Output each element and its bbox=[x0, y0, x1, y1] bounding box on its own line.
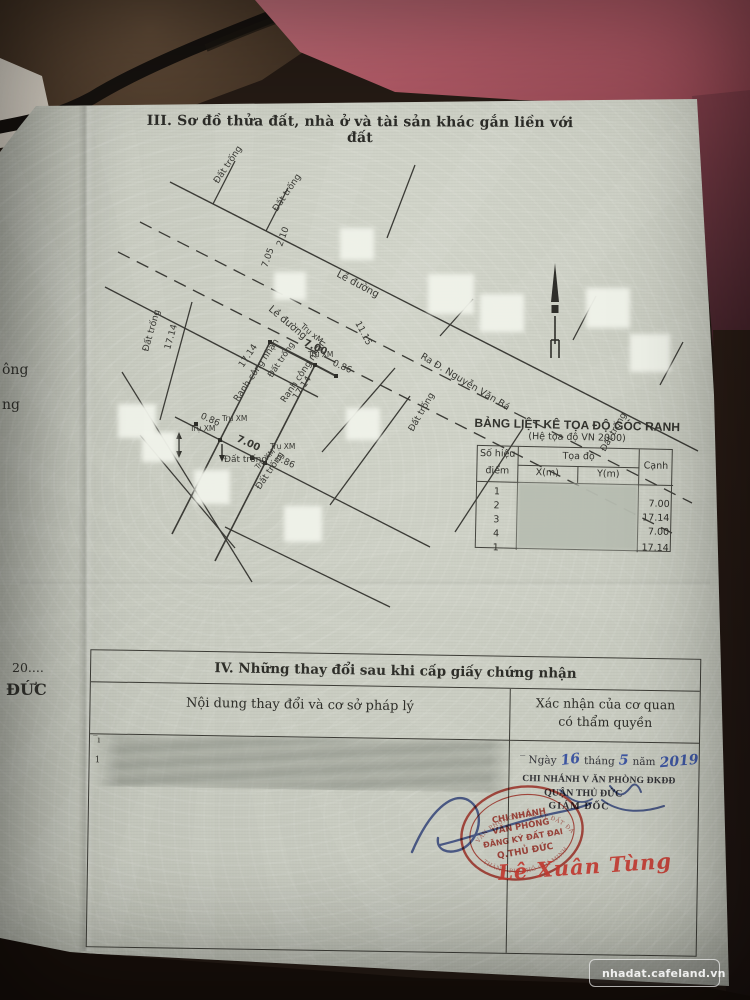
map-line bbox=[160, 302, 192, 420]
margin-mark: 1 bbox=[95, 755, 101, 765]
col-header-point-no-2: điểm bbox=[477, 466, 517, 477]
coord-point: 3 bbox=[476, 514, 516, 526]
coord-point: 4 bbox=[476, 528, 516, 540]
redacted-map-patch bbox=[480, 294, 524, 332]
map-line bbox=[122, 372, 252, 582]
col-header-edge: Cạnh bbox=[638, 461, 673, 472]
map-label: 2.10 bbox=[275, 226, 291, 249]
map-label: 11.15 bbox=[352, 320, 373, 347]
redacted-map-patch bbox=[274, 272, 306, 300]
redacted-coordinates bbox=[517, 483, 638, 550]
redacted-map-patch bbox=[340, 228, 374, 260]
redacted-map-patch bbox=[194, 470, 230, 504]
coord-point: 1 bbox=[477, 486, 517, 498]
map-line bbox=[387, 165, 415, 238]
redacted-map-patch bbox=[142, 432, 176, 462]
arrowhead bbox=[176, 432, 182, 439]
map-label: Trụ XM bbox=[189, 424, 215, 433]
col-header-changes: Nội dung thay đổi và cơ sở pháp lý bbox=[90, 694, 509, 716]
watermark-text: nhadat.cafeland.vn bbox=[602, 967, 726, 980]
official-red-stamp: CHI NHÁNH VĂN PHÒNG ĐĂNG KÝ ĐẤT ĐAI Q.TH… bbox=[440, 765, 610, 905]
redacted-map-patch bbox=[284, 506, 322, 542]
map-label: 7.05 bbox=[260, 247, 276, 269]
map-label: 0.86 bbox=[331, 359, 354, 376]
col-header-confirmation-line1: Xác nhận của cơ quan bbox=[509, 694, 701, 715]
map-label: Đất trống bbox=[406, 391, 437, 434]
map-label: 7.00 bbox=[235, 434, 262, 454]
coord-edge: 17.14 bbox=[638, 542, 669, 554]
watermark-badge: nhadat.cafeland.vn bbox=[589, 959, 720, 987]
map-label: Đất trống bbox=[211, 144, 244, 186]
section4-header-row: Nội dung thay đổi và cơ sở pháp lý Xác n… bbox=[90, 682, 700, 744]
col-header-point-no-1: Số hiệu bbox=[478, 449, 518, 460]
coord-point: 2 bbox=[476, 500, 516, 512]
col-header-x: X(m) bbox=[517, 468, 577, 480]
cement-post-marker bbox=[334, 374, 338, 378]
arrowhead bbox=[176, 451, 182, 458]
redacted-map-patch bbox=[586, 288, 630, 328]
redacted-map-patch bbox=[428, 274, 474, 314]
col-header-coords: Tọa độ bbox=[518, 451, 640, 464]
coordinate-table-grid: Số hiệu điểm Tọa độ X(m) Y(m) Cạnh 12341… bbox=[475, 445, 673, 552]
coord-edge: 7.00 bbox=[638, 526, 669, 538]
col-header-confirmation: Xác nhận của cơ quan có thẩm quyền bbox=[509, 694, 702, 733]
col-header-confirmation-line2: có thẩm quyền bbox=[509, 712, 701, 733]
map-label: Đất trống bbox=[270, 172, 303, 214]
redacted-map-patch bbox=[346, 408, 380, 440]
map-label: 17.14 bbox=[163, 323, 180, 351]
coord-edge: 7.00 bbox=[639, 498, 670, 510]
redacted-map-patch bbox=[630, 334, 670, 372]
map-line bbox=[105, 287, 318, 397]
coord-edge: 17.14 bbox=[638, 512, 669, 524]
north-arrow-icon bbox=[551, 263, 559, 358]
cement-post-marker bbox=[218, 438, 222, 442]
map-label: Đất trống bbox=[140, 308, 162, 352]
coordinate-table: BẢNG LIỆT KÊ TỌA ĐỘ GÓC RANH (Hệ tọa độ … bbox=[475, 416, 678, 560]
margin-mark: ‾ı bbox=[93, 735, 101, 745]
map-label: Lề đường bbox=[335, 268, 382, 300]
coord-point: 1 bbox=[476, 542, 516, 554]
photo-of-land-certificate: ôngng20....ĐỨC III. Sơ đồ thửa đất, nhà … bbox=[0, 0, 750, 1000]
map-label: Trụ XM bbox=[221, 414, 247, 423]
col-header-y: Y(m) bbox=[577, 469, 639, 481]
